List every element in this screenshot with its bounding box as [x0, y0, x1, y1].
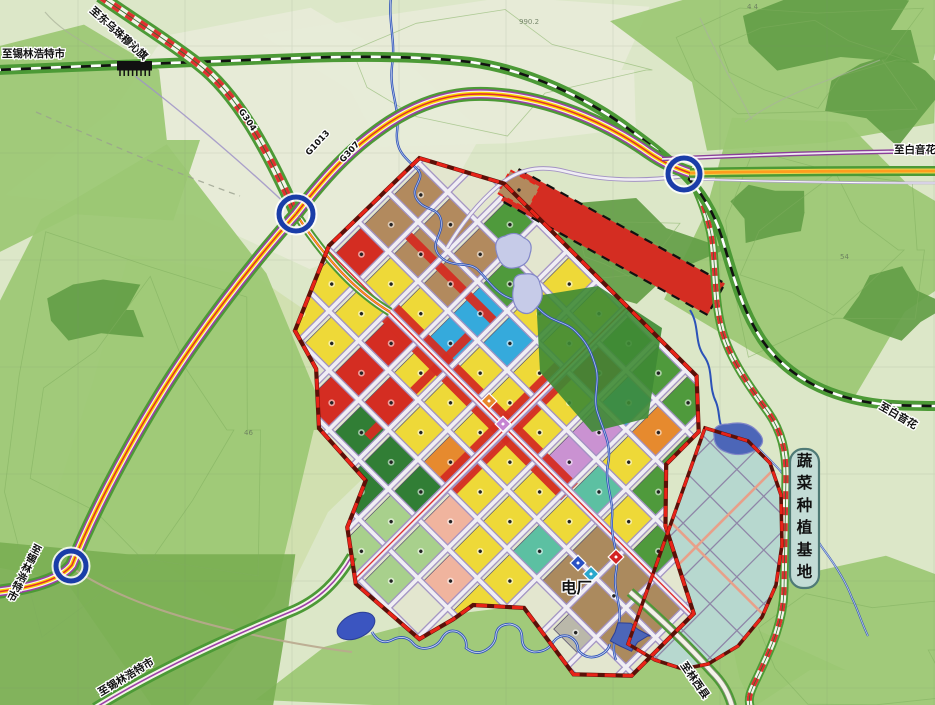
- station-block: [117, 61, 152, 71]
- label-char: 种: [796, 495, 813, 514]
- label-elev-990: 990.2: [519, 18, 539, 26]
- label-char: 菜: [796, 473, 813, 492]
- label-power-plant: 电厂: [561, 578, 592, 597]
- label-to-baiyinhua-road: 至白音花: [894, 143, 935, 156]
- vegetable-base-label: 蔬菜种植基地: [790, 449, 819, 588]
- label-elev-54: 54: [840, 253, 849, 261]
- lake: [496, 233, 531, 268]
- label-char: 植: [796, 518, 813, 537]
- label-char: 基: [796, 540, 813, 559]
- label-to-xilinhaote-west: 至锡林浩特市: [2, 47, 65, 60]
- map-canvas: 蔬菜种植基地至锡林浩特市至东乌珠穆沁旗至锡林浩特市G304G1013G307至白…: [0, 0, 935, 705]
- label-elev-46: 46: [244, 429, 253, 437]
- label-char: 蔬: [797, 451, 813, 470]
- planning-map: 蔬菜种植基地至锡林浩特市至东乌珠穆沁旗至锡林浩特市G304G1013G307至白…: [0, 0, 935, 705]
- label-elev-44: 4 4: [747, 3, 759, 11]
- label-char: 地: [797, 562, 813, 581]
